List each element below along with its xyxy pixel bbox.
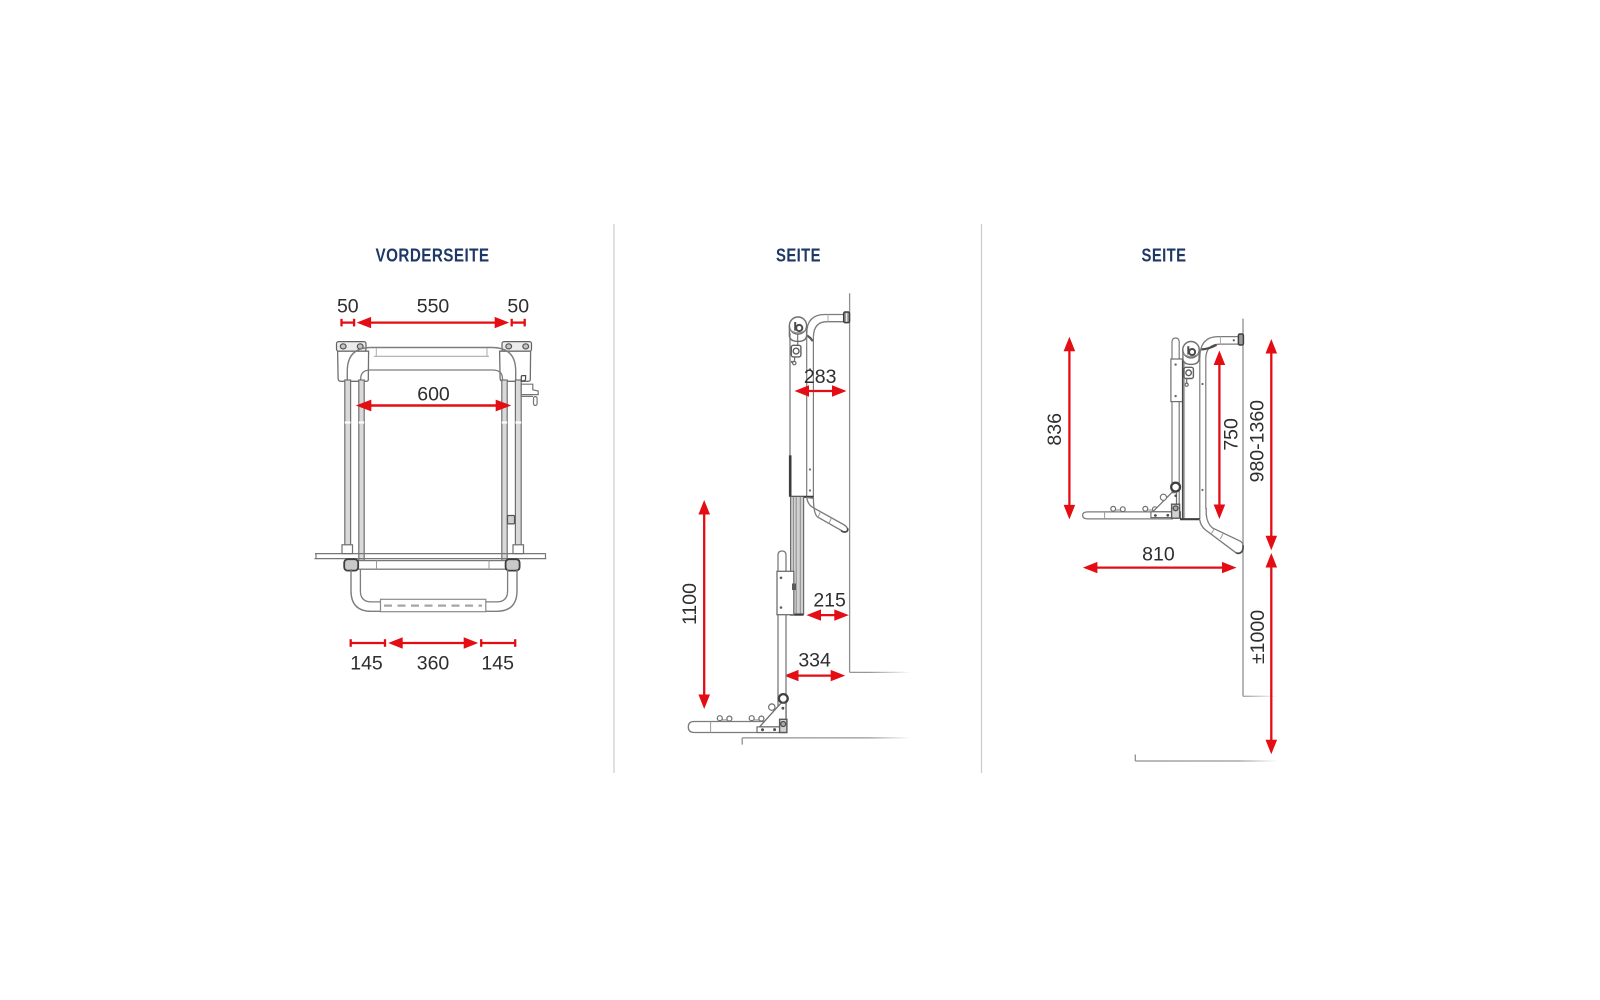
svg-text:SEITE: SEITE xyxy=(776,246,821,266)
svg-text:283: 283 xyxy=(804,366,837,388)
svg-text:VORDERSEITE: VORDERSEITE xyxy=(376,246,490,266)
svg-text:1100: 1100 xyxy=(679,583,701,625)
svg-text:SEITE: SEITE xyxy=(1142,246,1187,266)
svg-text:980-1360: 980-1360 xyxy=(1247,400,1269,483)
svg-text:750: 750 xyxy=(1220,418,1242,451)
svg-text:50: 50 xyxy=(507,296,529,318)
svg-text:600: 600 xyxy=(417,384,450,406)
svg-text:810: 810 xyxy=(1142,544,1175,566)
svg-text:145: 145 xyxy=(350,653,383,675)
svg-text:50: 50 xyxy=(337,296,359,318)
svg-text:215: 215 xyxy=(813,590,846,612)
svg-text:145: 145 xyxy=(481,653,514,675)
svg-text:±1000: ±1000 xyxy=(1247,610,1269,664)
svg-text:334: 334 xyxy=(798,650,831,672)
svg-text:360: 360 xyxy=(417,653,450,675)
svg-text:550: 550 xyxy=(417,296,450,318)
svg-text:836: 836 xyxy=(1044,413,1066,446)
